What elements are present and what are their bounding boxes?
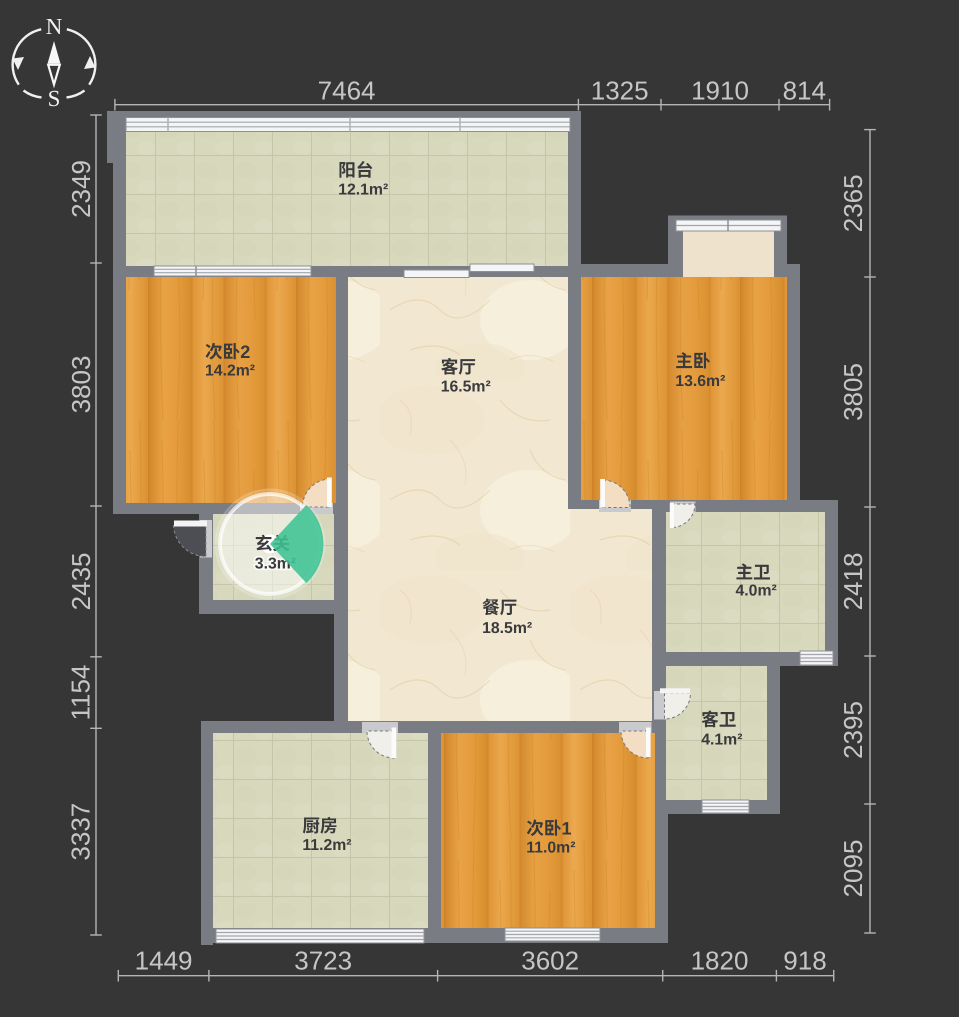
svg-text:1: 1 — [562, 818, 572, 838]
svg-text:18.5m²: 18.5m² — [482, 620, 532, 637]
svg-text:2: 2 — [240, 342, 250, 362]
svg-text:2435: 2435 — [66, 552, 96, 610]
svg-text:3803: 3803 — [66, 356, 96, 414]
svg-text:1820: 1820 — [691, 945, 749, 975]
svg-text:N: N — [46, 14, 63, 39]
svg-text:13.6m²: 13.6m² — [675, 373, 725, 390]
svg-text:1449: 1449 — [135, 945, 193, 975]
svg-text:16.5m²: 16.5m² — [441, 379, 491, 396]
svg-text:11.2m²: 11.2m² — [302, 837, 351, 854]
svg-text:2418: 2418 — [838, 553, 868, 611]
svg-text:12.1m²: 12.1m² — [338, 181, 388, 198]
svg-text:918: 918 — [783, 945, 826, 975]
svg-text:7464: 7464 — [318, 75, 376, 105]
svg-text:3602: 3602 — [521, 945, 579, 975]
svg-text:S: S — [48, 86, 61, 111]
svg-text:2095: 2095 — [838, 840, 868, 898]
svg-text:2365: 2365 — [838, 174, 868, 232]
svg-text:4.1m²: 4.1m² — [701, 732, 742, 749]
svg-text:3723: 3723 — [294, 945, 352, 975]
svg-text:4.0m²: 4.0m² — [736, 583, 777, 600]
svg-text:2395: 2395 — [838, 701, 868, 759]
svg-text:814: 814 — [783, 75, 826, 105]
svg-text:1910: 1910 — [691, 75, 749, 105]
svg-text:14.2m²: 14.2m² — [205, 363, 255, 380]
svg-text:11.0m²: 11.0m² — [526, 840, 575, 857]
svg-text:1325: 1325 — [591, 75, 649, 105]
svg-text:3337: 3337 — [66, 803, 96, 861]
svg-text:3805: 3805 — [838, 363, 868, 421]
svg-text:2349: 2349 — [66, 160, 96, 218]
svg-text:1154: 1154 — [66, 665, 96, 721]
